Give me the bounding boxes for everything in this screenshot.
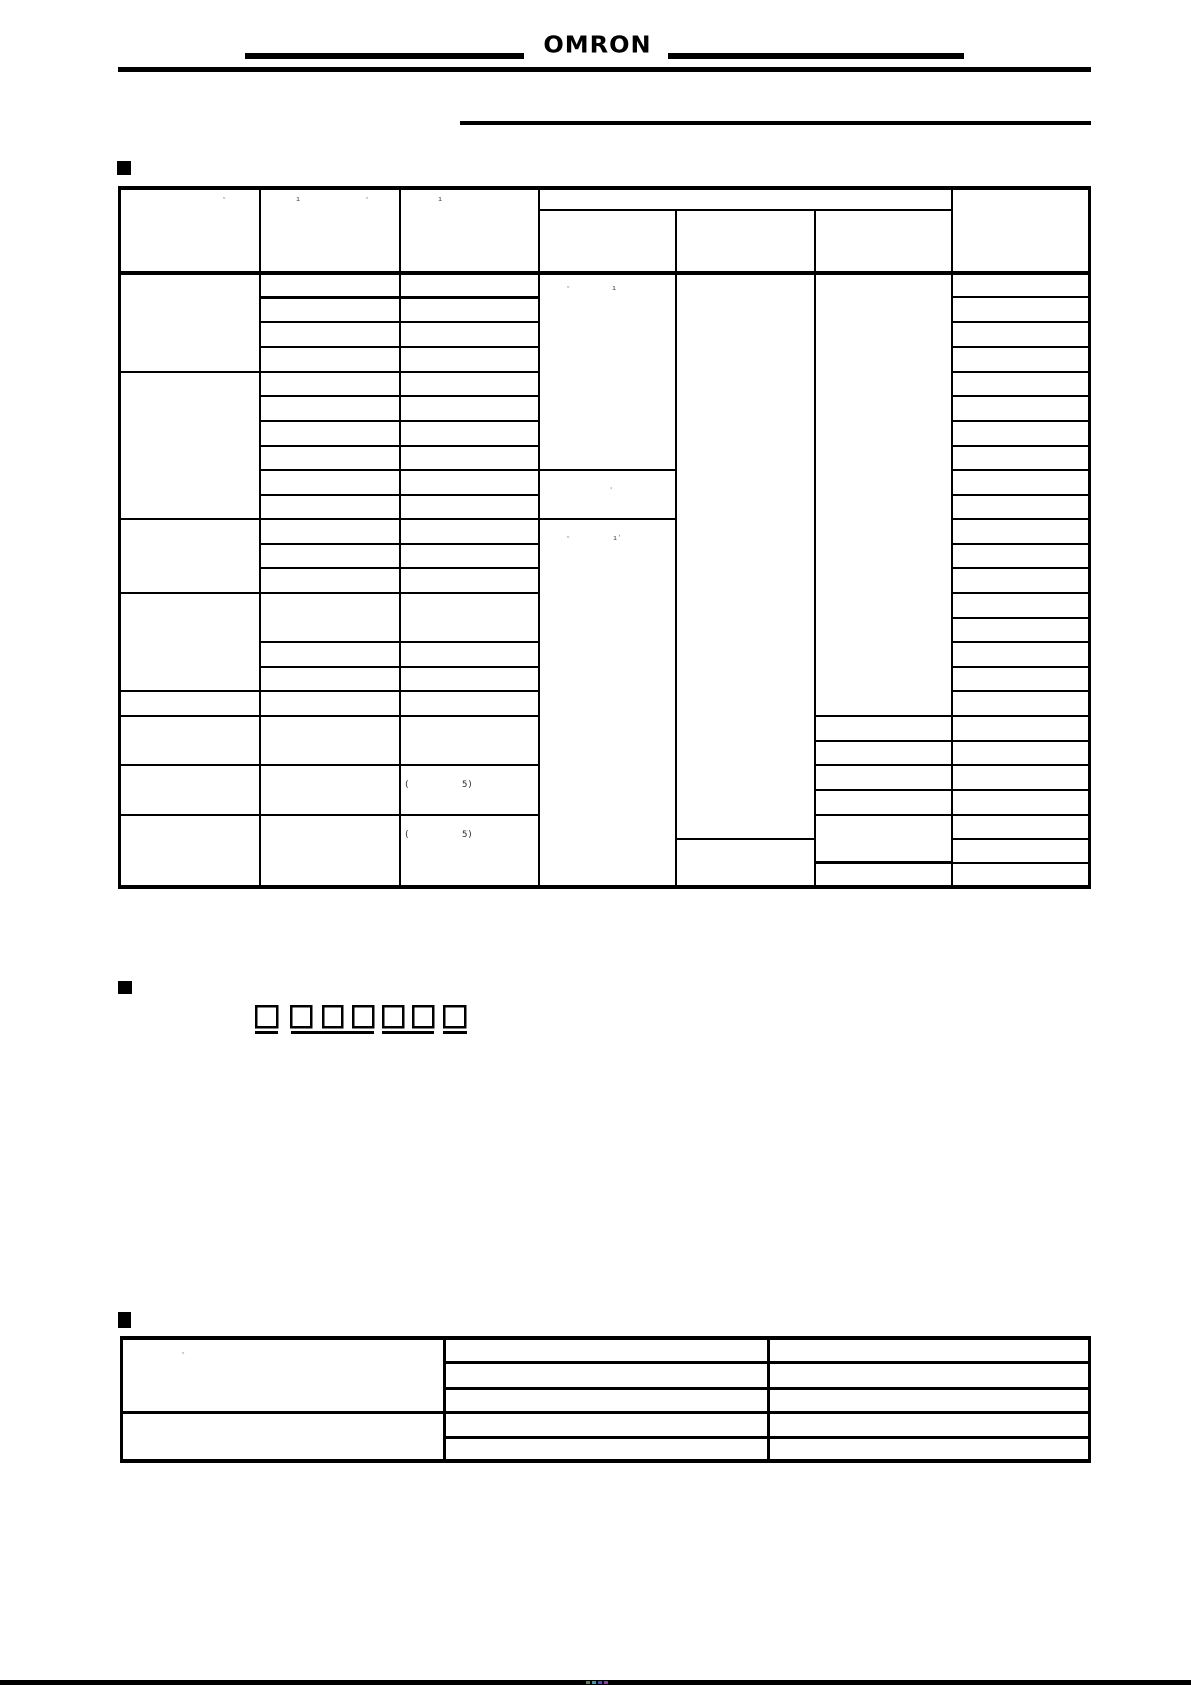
digit-group-underline xyxy=(443,1031,467,1034)
grid-line xyxy=(951,617,1091,619)
grid-line xyxy=(951,395,1091,397)
grid-line xyxy=(814,861,953,864)
digit-group-underline xyxy=(291,1031,374,1034)
model-digit-box xyxy=(323,1006,342,1027)
grid-line xyxy=(120,1336,123,1463)
text-remnant: ᵕ xyxy=(181,1351,185,1358)
grid-line xyxy=(675,209,677,889)
grid-line xyxy=(951,371,1091,373)
digit-group-underline xyxy=(382,1031,434,1034)
model-digit-box xyxy=(444,1006,465,1027)
grid-line xyxy=(951,543,1091,545)
grid-line xyxy=(951,420,1091,422)
page-graphics xyxy=(0,0,1191,1685)
model-digit-box xyxy=(291,1006,311,1027)
model-number-underlines xyxy=(255,1031,467,1034)
grid-line xyxy=(1088,1336,1091,1463)
registration-mark xyxy=(604,1681,608,1684)
grid-line xyxy=(118,715,539,717)
grid-line xyxy=(259,543,539,545)
grid-line xyxy=(951,715,1091,717)
grid-line xyxy=(259,420,539,422)
grid-line xyxy=(538,186,540,889)
grid-line xyxy=(538,209,953,211)
grid-line xyxy=(259,666,539,668)
model-digit-box xyxy=(353,1006,373,1027)
grid-line xyxy=(118,690,539,692)
grid-line xyxy=(951,321,1091,323)
text-remnant: ᵕ xyxy=(566,285,570,292)
section-bullet-model-legend xyxy=(118,981,132,994)
grid-line xyxy=(767,1336,770,1463)
header-full-rule xyxy=(118,67,1091,72)
page-footer-bar xyxy=(0,1680,1191,1685)
grid-line xyxy=(951,814,1091,816)
grid-line xyxy=(443,1336,446,1463)
grid-line xyxy=(951,838,1091,840)
model-number-boxes xyxy=(256,1006,465,1027)
text-remnant: ᵕ xyxy=(365,196,369,203)
grid-line xyxy=(951,469,1091,471)
grid-line xyxy=(951,186,953,889)
grid-line xyxy=(118,186,121,889)
grid-line xyxy=(118,371,539,373)
accessories-table-grid xyxy=(120,1336,1091,1463)
text-remnant: ı xyxy=(438,196,442,203)
text-remnant: ıˈ xyxy=(613,535,621,542)
grid-line xyxy=(951,740,1091,742)
text-remnant: ( xyxy=(404,781,409,790)
text-remnant: 5) xyxy=(462,781,473,790)
grid-line xyxy=(120,1336,1091,1340)
digit-group-underline xyxy=(255,1031,278,1034)
grid-line xyxy=(118,271,1091,275)
text-remnant: ᵕ xyxy=(566,535,570,542)
grid-line xyxy=(118,764,539,766)
text-remnant: 5) xyxy=(462,831,473,840)
model-digit-box xyxy=(383,1006,403,1027)
grid-line xyxy=(951,592,1091,594)
grid-line xyxy=(814,740,953,742)
grid-line xyxy=(951,296,1091,298)
grid-line xyxy=(675,838,816,840)
registration-mark xyxy=(586,1681,590,1684)
grid-line xyxy=(951,789,1091,791)
text-remnant: ᵕ xyxy=(222,196,226,203)
model-digit-box xyxy=(256,1006,277,1027)
grid-line xyxy=(118,592,539,594)
grid-line xyxy=(259,321,539,323)
grid-line xyxy=(951,567,1091,569)
title-underline-rule xyxy=(460,121,1091,125)
logo-left-rule xyxy=(245,53,524,59)
grid-line xyxy=(1088,186,1091,889)
registration-mark xyxy=(598,1681,602,1684)
grid-line xyxy=(951,346,1091,348)
text-remnant: ˌ xyxy=(609,483,613,490)
grid-line xyxy=(443,1436,1091,1439)
grid-line xyxy=(951,666,1091,668)
grid-line xyxy=(259,186,261,889)
header-rules xyxy=(118,53,1091,125)
grid-line xyxy=(120,1459,1091,1463)
grid-line xyxy=(951,764,1091,766)
grid-line xyxy=(118,814,539,816)
grid-line xyxy=(259,445,539,447)
grid-line xyxy=(118,186,1091,190)
grid-line xyxy=(399,186,401,889)
grid-line xyxy=(443,1387,1091,1390)
grid-line xyxy=(259,494,539,496)
grid-line xyxy=(951,494,1091,496)
grid-line xyxy=(814,789,953,791)
grid-line xyxy=(951,518,1091,520)
section-bullet-ordering xyxy=(117,161,131,175)
logo-right-rule xyxy=(668,53,964,59)
grid-line xyxy=(443,1361,1091,1364)
grid-line xyxy=(259,641,539,643)
grid-line xyxy=(814,209,816,889)
grid-line xyxy=(259,395,539,397)
grid-line xyxy=(120,1411,1091,1414)
grid-line xyxy=(951,641,1091,643)
grid-line xyxy=(814,764,953,766)
grid-line xyxy=(118,518,676,520)
registration-mark xyxy=(592,1681,596,1684)
text-remnant: ı xyxy=(296,196,300,203)
grid-line xyxy=(259,346,539,348)
grid-line xyxy=(814,814,953,816)
grid-line xyxy=(259,567,539,569)
datasheet-page: OMRON xyxy=(0,0,1191,1685)
grid-line xyxy=(814,715,953,717)
grid-line xyxy=(951,690,1091,692)
grid-line xyxy=(951,862,1091,864)
grid-line xyxy=(259,296,539,299)
grid-line xyxy=(951,445,1091,447)
grid-line xyxy=(118,885,1091,889)
model-digit-box xyxy=(413,1006,433,1027)
section-bullet-accessories xyxy=(118,1312,131,1328)
text-remnant: ı xyxy=(612,285,616,292)
grid-line xyxy=(259,469,676,471)
text-remnant: ( xyxy=(404,831,409,840)
ordering-table-grid xyxy=(118,186,1091,889)
